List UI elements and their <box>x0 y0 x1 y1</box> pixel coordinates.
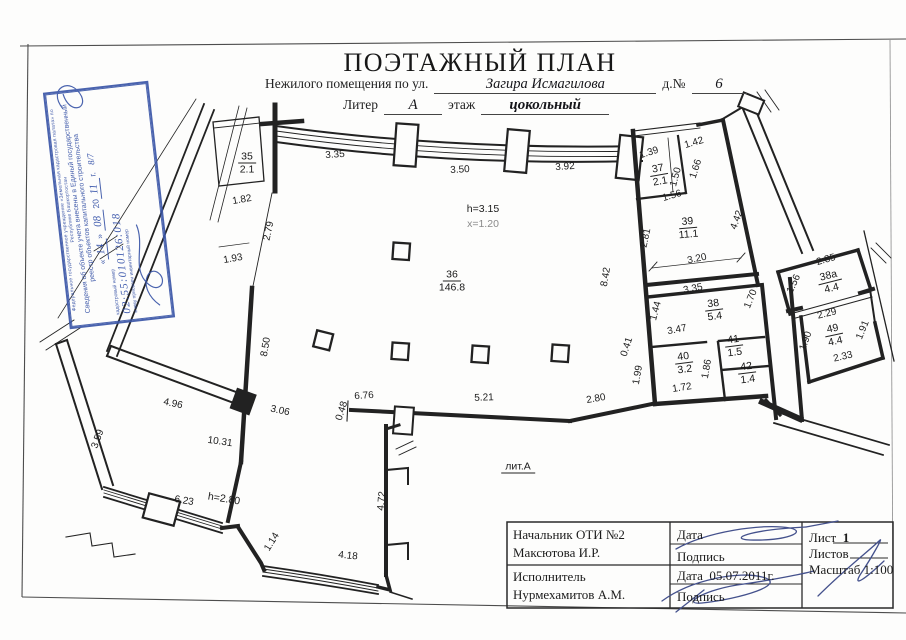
sign-label-2: Подпись <box>677 589 725 605</box>
ceiling-height-note: h=3.15 <box>467 203 499 215</box>
sheets-label: Листов <box>809 546 849 562</box>
room-label: 421.4 <box>737 360 758 387</box>
liter-value: А <box>384 97 442 115</box>
sheet-value: 1 <box>843 530 850 545</box>
sign-label-1: Подпись <box>677 549 725 565</box>
date-label-1: Дата <box>677 527 703 543</box>
liter-label: Литер <box>343 97 378 113</box>
scanned-floor-plan-document: ПОЭТАЖНЫЙ ПЛАН Нежилого помещения по ул.… <box>0 0 906 640</box>
dimension-label: 4.72 <box>376 491 389 511</box>
level-note: x=1.20 <box>467 218 499 230</box>
liter-note: лит.А <box>501 461 535 474</box>
date-value: 05.07.2011г. <box>709 568 774 583</box>
sheet-row: Лист 1 <box>809 530 849 546</box>
page-title: ПОЭТАЖНЫЙ ПЛАН <box>340 48 620 78</box>
room-label: 36146.8 <box>439 269 465 294</box>
liter-floor-line: Литер А этаж цокольный <box>343 97 609 115</box>
dimension-label: 5.21 <box>474 392 494 404</box>
dimension-label: 3.35 <box>325 149 345 161</box>
floor-label: этаж <box>448 97 475 113</box>
room-label: 385.4 <box>704 297 725 324</box>
floor-value: цокольный <box>481 97 609 115</box>
dimension-label: 4.18 <box>338 550 359 563</box>
room-label: 352.1 <box>238 151 256 176</box>
executor-name: Нурмехамитов А.М. <box>513 587 625 603</box>
address-line: Нежилого помещения по ул. Загира Исмагил… <box>265 76 747 94</box>
scale-row: Масштаб 1:100 <box>809 562 893 578</box>
chief-name: Максютова И.Р. <box>513 545 600 561</box>
date-label-2: Дата 05.07.2011г. <box>677 568 775 584</box>
dimension-label: 3.92 <box>555 161 575 173</box>
house-number-value: 6 <box>692 76 747 94</box>
dimension-label: 3.50 <box>450 164 470 176</box>
dimension-label: 6.76 <box>354 390 374 402</box>
street-value: Загира Исмагилова <box>434 76 656 94</box>
house-label: д.№ <box>662 76 685 92</box>
room-label: 411.5 <box>724 333 745 360</box>
scale-value: 1:100 <box>864 562 894 577</box>
address-prefix: Нежилого помещения по ул. <box>265 76 428 92</box>
room-label: 3911.1 <box>677 215 699 242</box>
chief-title: Начальник ОТИ №2 <box>513 527 625 543</box>
room-label: 403.2 <box>674 350 695 377</box>
executor-title: Исполнитель <box>513 569 586 585</box>
